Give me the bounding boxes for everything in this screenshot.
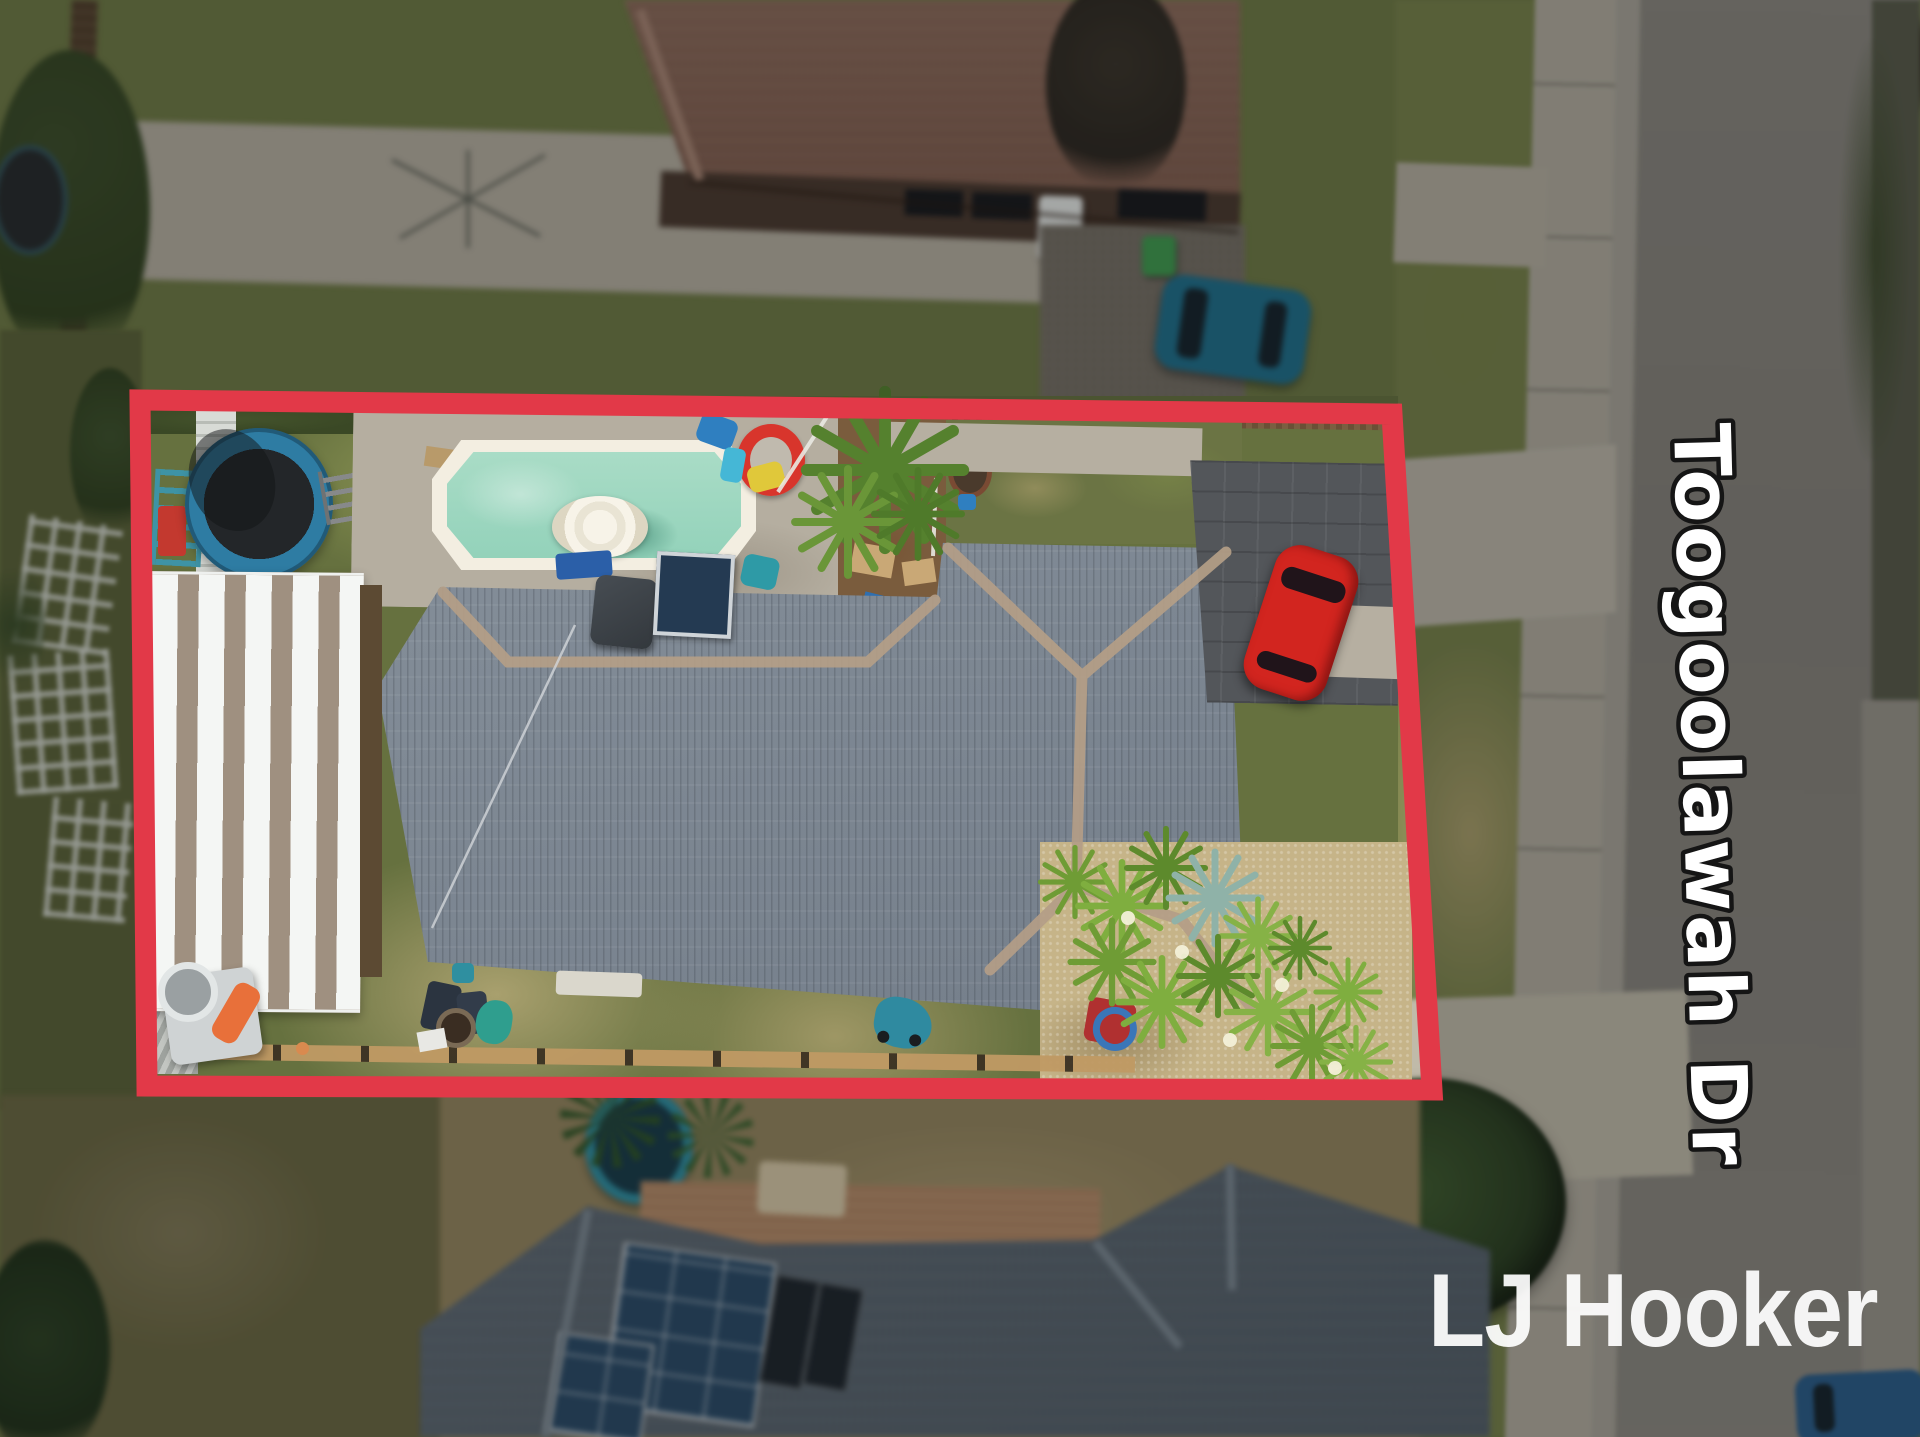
- red-toolbox: [158, 506, 186, 556]
- pool-steps: [552, 496, 648, 558]
- roof-ac-cube: [590, 574, 659, 650]
- orange-ball: [296, 1042, 309, 1055]
- side-path: [880, 422, 1203, 477]
- subject-property-group: [0, 0, 1920, 1437]
- gravel-garden: [1040, 842, 1412, 1092]
- agency-watermark: LJ Hooker: [1428, 1252, 1878, 1371]
- blue-tub: [958, 494, 976, 510]
- cubby-turret: [158, 962, 218, 1022]
- roof-solar-panel: [653, 551, 735, 639]
- teal-tub: [452, 963, 474, 983]
- white-tarp: [556, 971, 643, 998]
- aerial-photo: Toogoolawah Dr LJ Hooker: [0, 0, 1920, 1437]
- deck-gap: [360, 585, 382, 977]
- pergola: [148, 571, 364, 1013]
- hose-reel: [1083, 996, 1138, 1048]
- cardboard: [901, 558, 936, 586]
